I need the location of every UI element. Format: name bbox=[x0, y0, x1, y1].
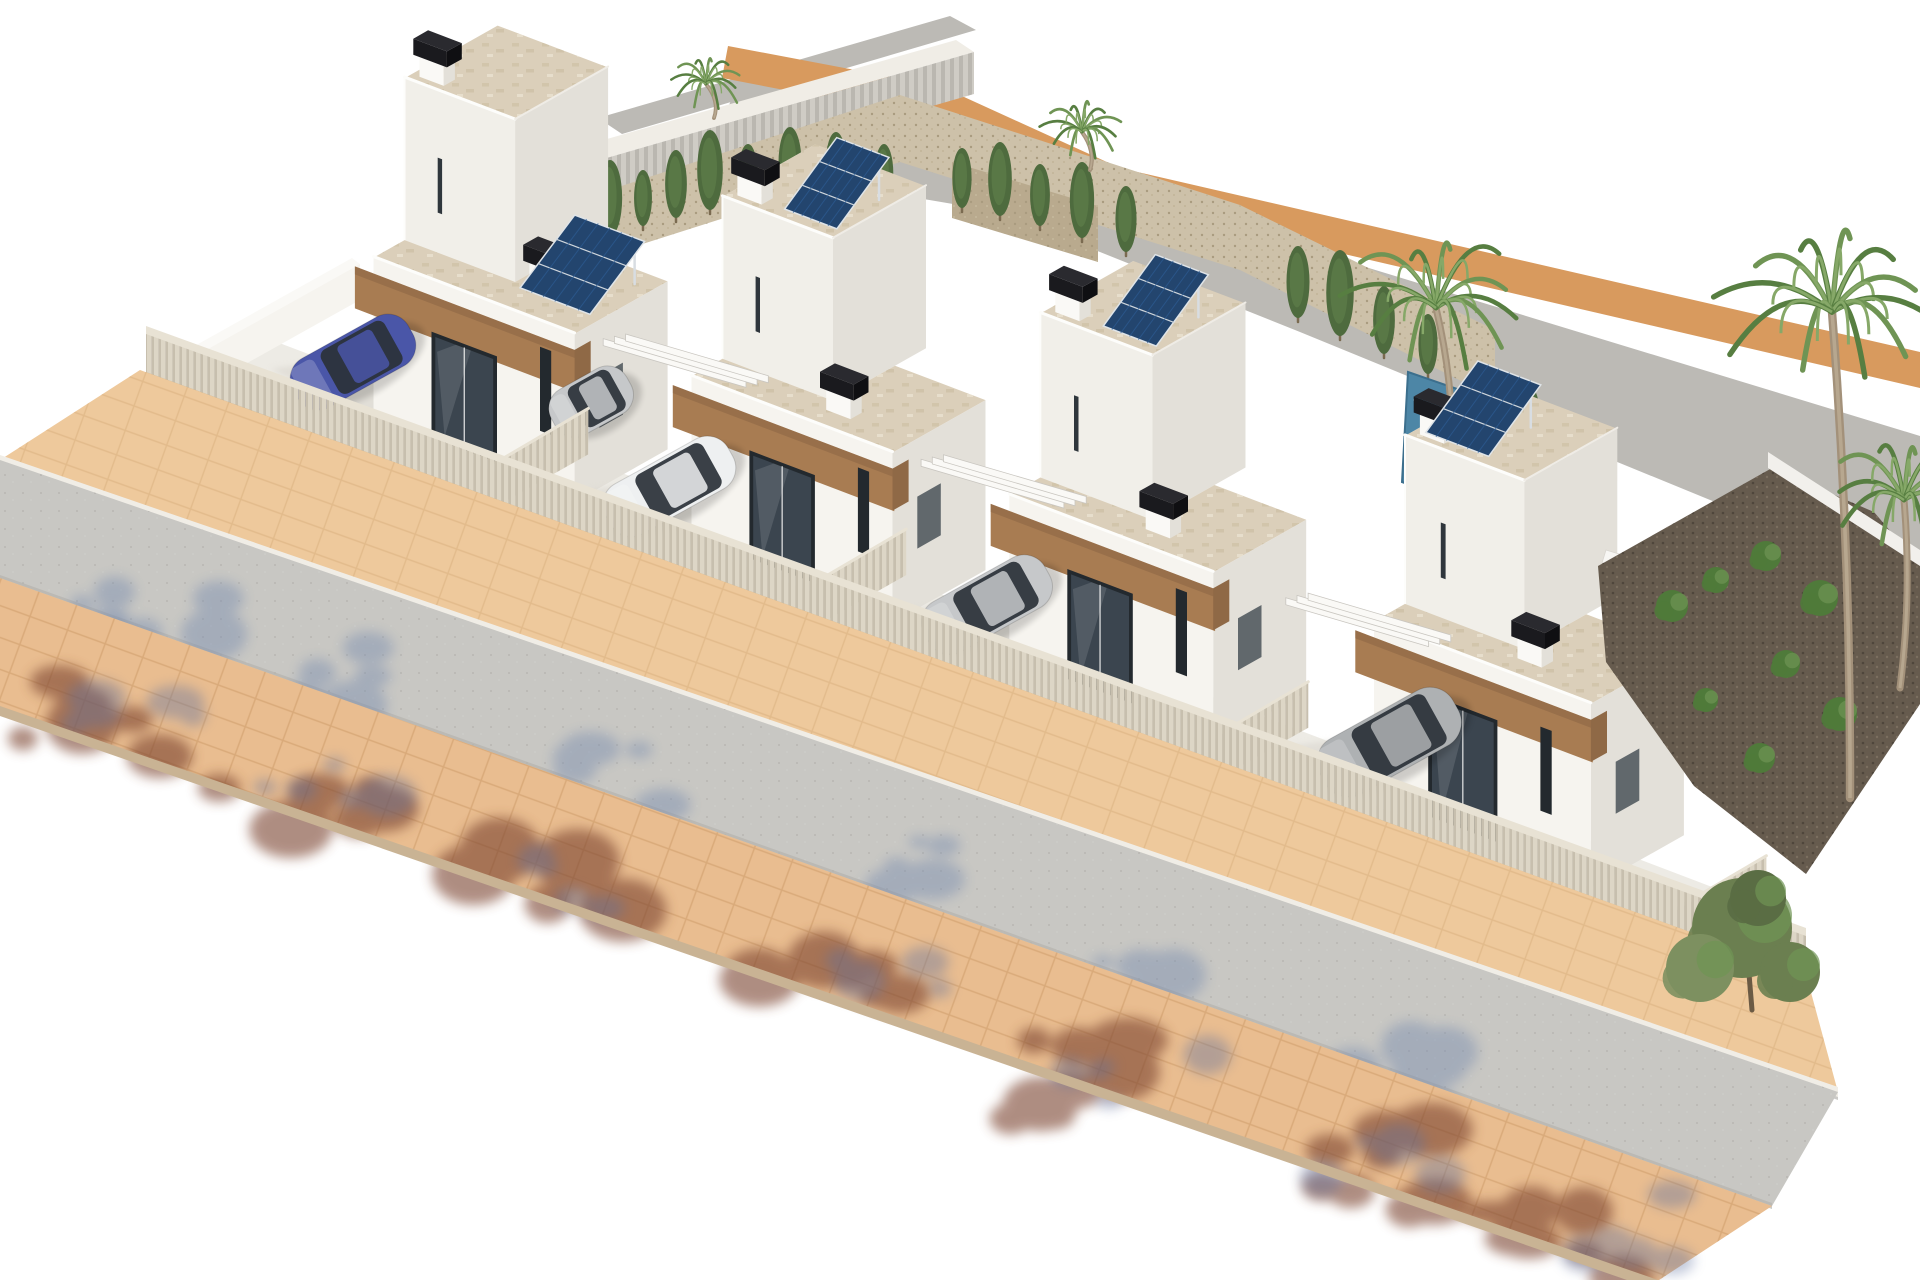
slit-window bbox=[540, 347, 551, 435]
slit-window bbox=[1176, 588, 1187, 676]
slit-window bbox=[1540, 727, 1551, 815]
slit-window bbox=[858, 467, 869, 555]
architectural-render bbox=[0, 0, 1920, 1280]
